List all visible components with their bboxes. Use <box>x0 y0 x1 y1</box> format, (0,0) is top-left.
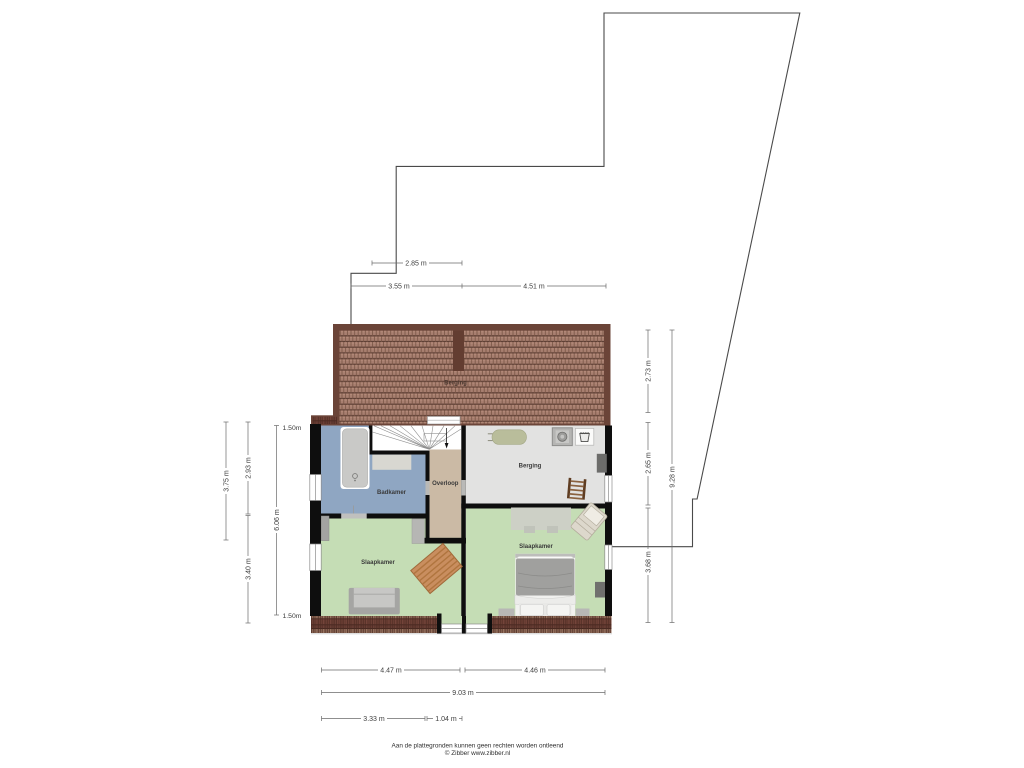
svg-text:2.73 m: 2.73 m <box>646 360 653 382</box>
svg-text:4.51 m: 4.51 m <box>523 284 545 291</box>
svg-text:Berging: Berging <box>444 381 467 387</box>
svg-text:9.03 m: 9.03 m <box>452 690 474 697</box>
svg-text:3.40 m: 3.40 m <box>246 558 253 580</box>
svg-text:4.47 m: 4.47 m <box>380 668 402 675</box>
svg-text:Berging: Berging <box>519 463 542 469</box>
svg-text:1.50m: 1.50m <box>283 613 302 620</box>
svg-text:4.46 m: 4.46 m <box>524 668 546 675</box>
svg-text:3.68 m: 3.68 m <box>646 551 653 573</box>
svg-text:3.55 m: 3.55 m <box>388 284 410 291</box>
svg-text:Slaapkamer: Slaapkamer <box>361 560 395 566</box>
svg-text:3.75 m: 3.75 m <box>224 470 231 492</box>
svg-text:2.65 m: 2.65 m <box>646 452 653 474</box>
svg-text:2.85 m: 2.85 m <box>405 261 427 268</box>
svg-text:Badkamer: Badkamer <box>377 490 407 496</box>
svg-text:Slaapkamer: Slaapkamer <box>519 544 553 550</box>
svg-text:© Zibber www.zibber.nl: © Zibber www.zibber.nl <box>445 749 510 757</box>
svg-text:3.33 m: 3.33 m <box>363 716 385 723</box>
svg-text:Overloop: Overloop <box>432 481 459 487</box>
svg-text:2.93 m: 2.93 m <box>246 457 253 479</box>
svg-text:1.50m: 1.50m <box>283 425 302 432</box>
svg-text:9.28 m: 9.28 m <box>670 466 677 488</box>
svg-text:6.06 m: 6.06 m <box>274 509 281 531</box>
svg-text:Aan de plattegronden kunnen ge: Aan de plattegronden kunnen geen rechten… <box>392 743 564 750</box>
svg-text:1.04 m: 1.04 m <box>435 716 457 723</box>
